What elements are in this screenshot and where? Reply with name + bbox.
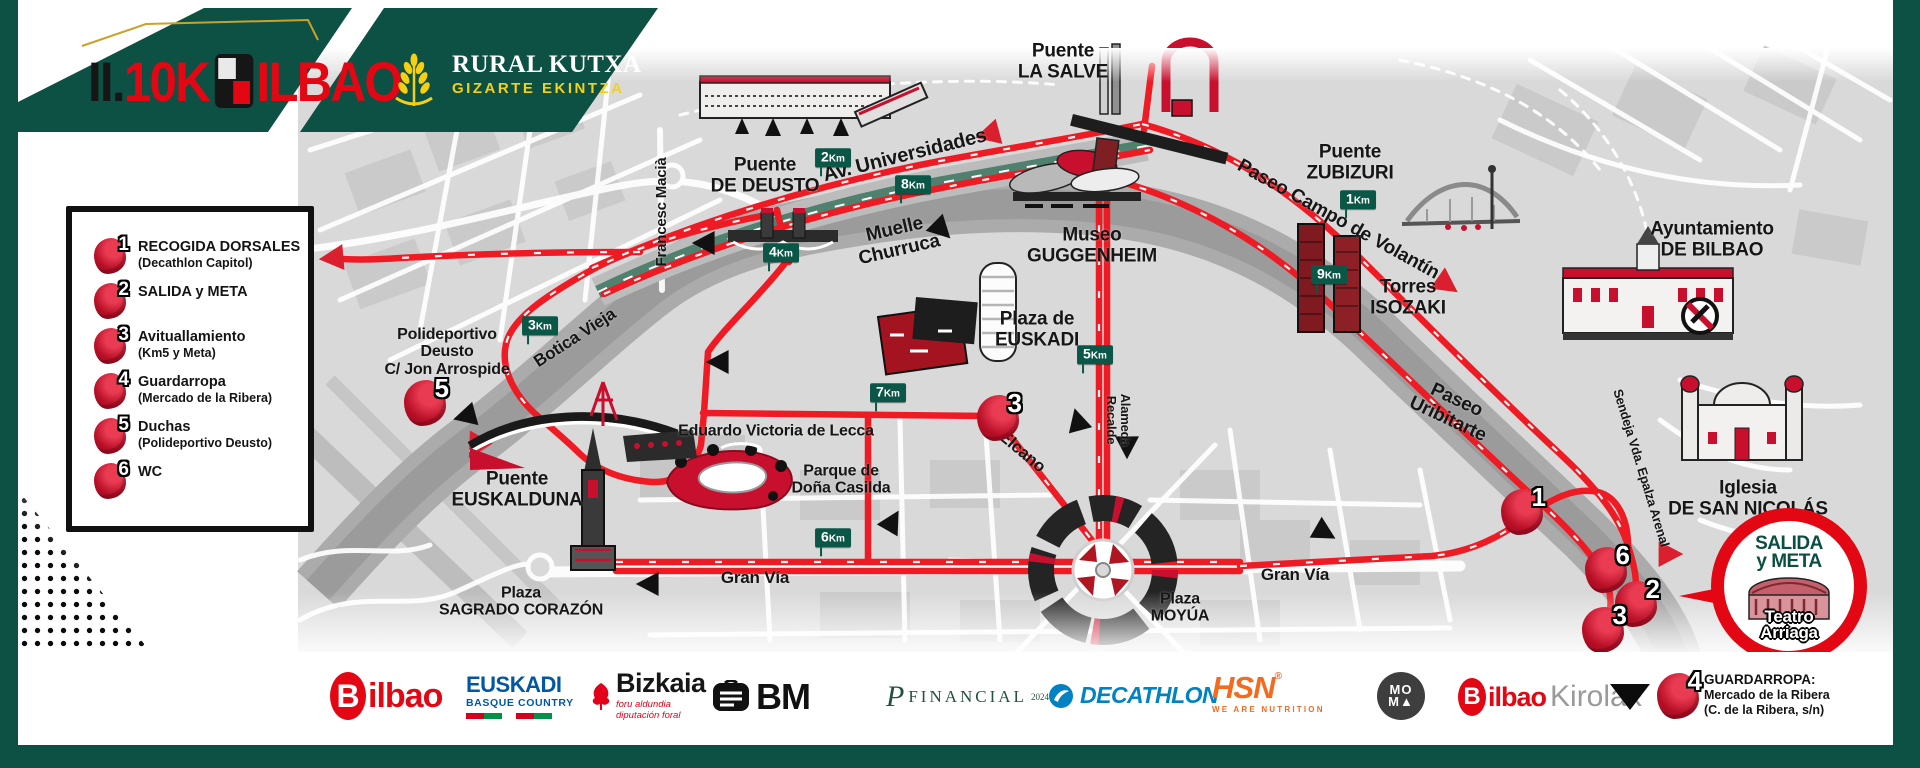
marker-2-icon: 2 (94, 283, 126, 319)
legend-box: 1 RECOGIDA DORSALES (Decathlon Capitol) … (66, 206, 314, 532)
marker-6-icon: 6 (94, 463, 126, 499)
wheat-icon (388, 48, 440, 110)
legend-title: WC (138, 465, 162, 481)
decathlon-icon (1048, 683, 1074, 709)
event-logo-city: ILBAO (256, 49, 401, 114)
legend-title: SALIDA y META (138, 285, 248, 301)
bilbao-logo: B ilbao (330, 672, 442, 720)
marker-3-icon: 3 (94, 328, 126, 364)
legend-sub: (Mercado de la Ribera) (138, 391, 272, 405)
marker-4-footer: 4 (1657, 673, 1699, 719)
frame-right (1893, 0, 1920, 768)
bilbao-b-icon (215, 54, 254, 108)
legend-sub: (Decathlon Capitol) (138, 256, 300, 270)
euskadi-logo: EUSKADI BASQUE COUNTRY (466, 674, 574, 719)
sponsor-bar: B ilbao EUSKADI BASQUE COUNTRY Bizkaia f… (18, 652, 1893, 745)
finish-label-2: y META (1756, 553, 1821, 571)
legend-item-6: 6 WC (94, 463, 308, 499)
rural-kutxa-logo: RURAL KUTXA GIZARTE EKINTZA (452, 52, 642, 97)
course-map-poster: Puente DE DEUSTOAv. UniversidadesPuente … (0, 0, 1920, 768)
bilbao-b-badge: B (330, 672, 366, 720)
event-logo: II.10K ILBAO (88, 50, 401, 112)
financial-logo: P FINANCIAL 2024 (886, 680, 1049, 714)
legend-title: Duchas (138, 420, 272, 436)
finish-circle: SALIDA y META Teatro Arriaga (1711, 508, 1867, 664)
finish-venue: Teatro Arriaga (1760, 609, 1817, 641)
legend-title: RECOGIDA DORSALES (138, 240, 300, 256)
down-triangle-icon (1610, 684, 1650, 710)
legend-sub: (Polideportivo Deusto) (138, 436, 272, 450)
frame-bottom (0, 745, 1920, 768)
bm-basket-icon (712, 680, 750, 714)
bizkaia-leaf-icon (590, 681, 612, 711)
euskadi-flag-bars (466, 713, 552, 719)
rural-kutxa-sub: GIZARTE EKINTZA (452, 81, 642, 97)
legend-item-5: 5 Duchas (Polideportivo Deusto) (94, 418, 308, 454)
legend-item-2: 2 SALIDA y META (94, 283, 308, 319)
event-logo-distance: 10K (124, 49, 209, 114)
legend-item-1: 1 RECOGIDA DORSALES (Decathlon Capitol) (94, 238, 308, 274)
marker-5-icon: 5 (94, 418, 126, 454)
legend-sub: (Km5 y Meta) (138, 346, 245, 360)
decathlon-logo: DECATHLON (1048, 682, 1218, 709)
moma-logo: MOM▲ (1377, 672, 1425, 720)
marker-1-icon: 1 (94, 238, 126, 274)
legend-title: Avituallamiento (138, 330, 245, 346)
map-bottom-fade (298, 592, 1893, 660)
finish-callout: SALIDA y META Teatro Arriaga (1711, 508, 1867, 664)
marker-4-icon: 4 (94, 373, 126, 409)
rural-kutxa-name: RURAL KUTXA (452, 52, 642, 78)
bizkaia-logo: Bizkaia foru aldundia diputación foral (590, 670, 706, 722)
frame-left (0, 0, 18, 768)
event-logo-roman: II. (88, 49, 124, 114)
bm-logo: BM (712, 676, 810, 718)
guardarropa-note: GUARDARROPA: Mercado de la Ribera (C. de… (1704, 672, 1830, 718)
guardarropa-direction (1610, 684, 1650, 710)
legend-item-4: 4 Guardarropa (Mercado de la Ribera) (94, 373, 308, 409)
hsn-logo: HSN® WE ARE NUTRITION (1212, 672, 1325, 714)
legend-title: Guardarropa (138, 375, 272, 391)
legend-item-3: 3 Avituallamiento (Km5 y Meta) (94, 328, 308, 364)
